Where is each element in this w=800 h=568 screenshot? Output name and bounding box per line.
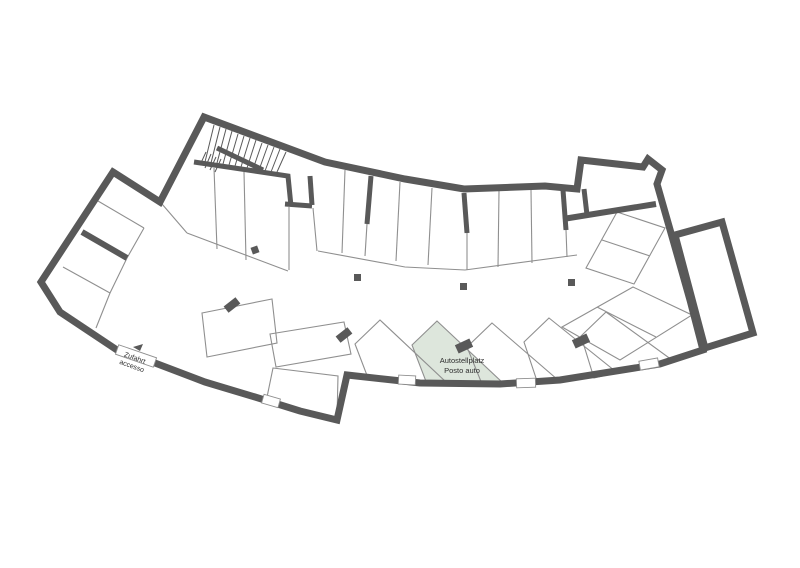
columns: [224, 246, 591, 354]
column: [224, 297, 241, 313]
window-opening: [516, 378, 535, 388]
column: [354, 274, 361, 281]
floor-plan: Autostellplatz Posto auto Zufahrt access…: [0, 0, 800, 568]
column: [568, 279, 575, 286]
window-opening: [398, 375, 415, 385]
window-opening: [639, 358, 659, 370]
column: [460, 283, 467, 290]
parking-space-label-line1: Autostellplatz: [440, 356, 485, 365]
side-room-walls: [675, 222, 753, 348]
interior-walls: [82, 148, 656, 258]
column: [251, 246, 260, 255]
floor-plan-page: Autostellplatz Posto auto Zufahrt access…: [0, 0, 800, 568]
parking-space-label-line2: Posto auto: [444, 366, 480, 375]
window-opening: [262, 394, 281, 407]
outer-wall: [41, 117, 703, 420]
column: [336, 327, 353, 343]
